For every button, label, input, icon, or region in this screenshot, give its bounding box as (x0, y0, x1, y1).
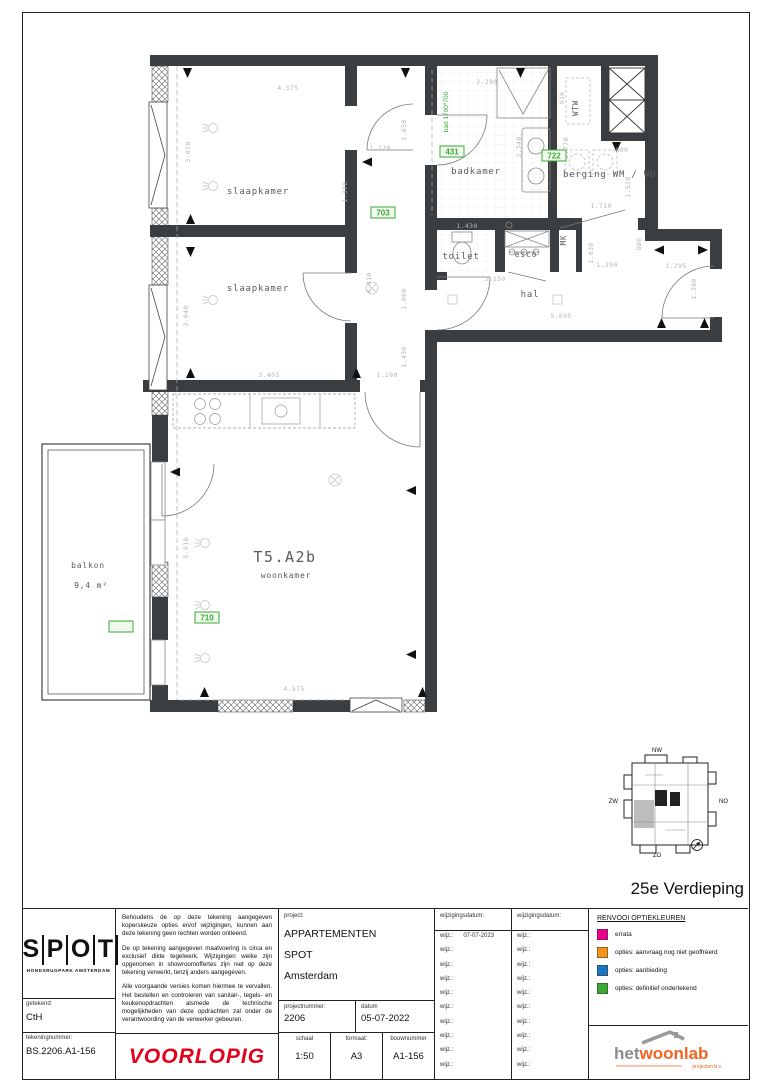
dim: 880 (635, 238, 643, 251)
room-label-wtw: WTW (571, 100, 580, 116)
kitchen (173, 394, 355, 428)
wijz-label: wijz.: (440, 1062, 453, 1068)
wijz-label: wijz.: (517, 990, 530, 996)
legend-label: opties: aanbieding (615, 967, 667, 974)
room-label-esco: esco (515, 250, 537, 259)
dim: 1.430 (456, 222, 477, 230)
wijz-label: wijz.: (517, 933, 530, 939)
legend-cell: RENVOOI OPTIEKLEUREN errata opties: aanv… (588, 909, 748, 1079)
room-label-slaapkamer-2: slaapkamer (227, 284, 289, 294)
datum-value: 05-07-2022 (361, 1013, 429, 1024)
brand-woonlab: woonlab (638, 1044, 708, 1063)
minimap-label-nw: NW (652, 748, 662, 754)
getekend-label: getekend: (26, 1001, 52, 1007)
tekeningnummer-label: tekeningnummer: (26, 1035, 72, 1041)
wijz-label: wijz.: (440, 1047, 453, 1053)
legend-swatch (597, 983, 608, 994)
room-label-berging: berging WM / WD (563, 170, 656, 180)
disclaimer-cell: Behoudens de op deze tekening aangegeven… (115, 909, 278, 1079)
wijz-label: wijz.: (440, 933, 453, 939)
dim: 910 (558, 92, 566, 105)
schaal-value: 1:50 (283, 1051, 326, 1062)
schaal-label: schaal (296, 1036, 313, 1042)
bad-size-note: bad 1700*700 (443, 91, 450, 132)
wijz-label: wijz.: (517, 947, 530, 953)
option-corridor: 703 (376, 209, 390, 218)
dim: 1.370 (341, 181, 349, 202)
room-label-woonkamer: woonkamer (261, 571, 312, 580)
legend-swatch (597, 965, 608, 976)
dim: 1.380 (690, 278, 698, 299)
dim: 2.290 (476, 78, 497, 86)
dim: 1.658 (400, 119, 408, 140)
wijz-label: wijz.: (517, 1047, 530, 1053)
wijz-date: 07-07-2023 (463, 933, 494, 939)
option-berging: 722 (547, 152, 561, 161)
dim: 3.040 (182, 305, 190, 326)
wijz-label: wijz.: (440, 1033, 453, 1039)
floor-title: 25e Verdieping (524, 879, 744, 899)
dim: 1.060 (400, 288, 408, 309)
wijz-label: wijz.: (440, 1004, 453, 1010)
room-label-hal: hal (521, 290, 540, 300)
brand-subtitle: projecten b.v. (692, 1064, 722, 1070)
dim: 5.695 (550, 312, 571, 320)
dim: 1.030 (587, 242, 595, 263)
logo-subtitle: HONDSRUGPARK AMSTERDAM (27, 968, 111, 973)
wijzigingsdatum-header: wijzigingsdatum: (512, 909, 588, 931)
option-woonkamer: 710 (200, 614, 214, 623)
legend-item-aanvraag: opties: aanvraag nog niet geoffreerd (597, 947, 740, 958)
dim: 1.528 (624, 176, 632, 197)
project-city: Amsterdam (284, 970, 429, 982)
walls (143, 55, 722, 712)
logo-letter: T (95, 937, 116, 962)
dim: 4.410 (365, 272, 373, 293)
legend-label: errata (615, 931, 632, 938)
wijzigingsdatum-header: wijzigingsdatum: (435, 909, 511, 931)
wijz-label: wijz.: (440, 1019, 453, 1025)
dim: 1.100 (376, 371, 397, 379)
projectnummer-value: 2206 (284, 1013, 350, 1024)
wijz-label: wijz.: (517, 976, 530, 982)
dim: 3.405 (258, 371, 279, 379)
svg-text:hetwoonlab: hetwoonlab (614, 1044, 708, 1063)
tekeningnummer-value: BS.2206.A1-156 (26, 1046, 111, 1057)
dim: 1.430 (400, 346, 408, 367)
formaat-value: A3 (335, 1051, 378, 1062)
legend-swatch (597, 929, 608, 940)
logo-letter: P (44, 937, 67, 962)
wijz-label: wijz.: (517, 1004, 530, 1010)
legend-item-aanbieding: opties: aanbieding (597, 965, 740, 976)
project-cell: project: APPARTEMENTEN SPOT Amsterdam pr… (278, 909, 434, 1079)
legend-label: opties: aanvraag nog niet geoffreerd (615, 949, 718, 956)
wijz-label: wijz.: (440, 947, 453, 953)
dim: 800 (616, 146, 629, 154)
datum-label: datum (361, 1004, 378, 1010)
dim: 1.295 (665, 262, 686, 270)
highlighted-unit (634, 800, 654, 828)
dim: 1.250 (596, 261, 617, 269)
project-label: project: (284, 913, 429, 919)
disclaimer-paragraph: De op tekening aangegeven maatvoering is… (122, 945, 272, 978)
revision-column-2: wijzigingsdatum: wijz.: wijz.: wijz.: wi… (511, 909, 588, 1079)
legend-item-errata: errata (597, 929, 740, 940)
balcony (42, 444, 150, 700)
minimap-label-zo: ZO (653, 853, 662, 859)
spot-logo: SPOT (19, 935, 117, 965)
dim: 1.710 (590, 202, 611, 210)
getekend-value: CtH (26, 1012, 111, 1023)
dim: 3.028 (184, 141, 192, 162)
minimap-label-no: NO (719, 799, 728, 805)
overview-minimap: NW ZW NO ZO (609, 748, 729, 859)
logo-cell: SPOT HONDSRUGPARK AMSTERDAM getekend: Ct… (22, 909, 115, 1079)
dim: 2.748 (515, 136, 523, 157)
unit-label: T5.A2b (253, 548, 316, 566)
shaft (609, 68, 645, 133)
hetwoonlab-logo: hetwoonlab projecten b.v. (589, 1026, 748, 1078)
room-label-slaapkamer-1: slaapkamer (227, 187, 289, 197)
disclaimer-paragraph: Behoudens de op deze tekening aangegeven… (122, 914, 272, 939)
wijz-label: wijz.: (517, 1062, 530, 1068)
bouwnummer-label: bouwnummer (390, 1036, 426, 1042)
room-label-balkon: balkon (71, 561, 105, 570)
dim: 4.575 (277, 84, 298, 92)
wijz-label: wijz.: (440, 976, 453, 982)
legend-label: opties: definitief ondertekend (615, 985, 697, 992)
room-label-mk: MK (559, 235, 568, 246)
project-name: APPARTEMENTEN (284, 928, 429, 940)
revision-column-1: wijzigingsdatum: wijz.:07-07-2023 wijz.:… (434, 909, 511, 1079)
minimap-label-zw: ZW (609, 799, 619, 805)
legend-swatch (597, 947, 608, 958)
dim: 3.150 (484, 275, 505, 283)
legend-item-ondertekend: opties: definitief ondertekend (597, 983, 740, 994)
wijz-label: wijz.: (440, 962, 453, 968)
wijz-label: wijz.: (517, 1033, 530, 1039)
option-badkamer: 431 (445, 148, 459, 157)
dim: 5.918 (182, 537, 190, 558)
bouwnummer-value: A1-156 (387, 1051, 430, 1062)
legend-title: RENVOOI OPTIEKLEUREN (597, 915, 740, 922)
title-block: SPOT HONDSRUGPARK AMSTERDAM getekend: Ct… (22, 908, 748, 1079)
balkon-area-value: 9,4 m² (74, 581, 108, 590)
project-name-2: SPOT (284, 949, 429, 961)
formaat-label: formaat: (345, 1036, 367, 1042)
logo-letter: O (68, 937, 93, 962)
disclaimer-paragraph: Alle voorgaande versies komen hiermee te… (122, 983, 272, 1024)
brand-het: het (614, 1044, 640, 1063)
dim: 4.575 (283, 685, 304, 693)
drawing-sheet: { "floor_label": "25e Verdieping", "plan… (0, 0, 772, 1092)
wijz-label: wijz.: (517, 962, 530, 968)
logo-letter: S (19, 937, 42, 962)
voorlopig-stamp: VOORLOPIG (116, 1034, 278, 1079)
dim: 1.170 (369, 144, 390, 152)
wijz-label: wijz.: (517, 1019, 530, 1025)
projectnummer-label: projectnummer: (284, 1004, 326, 1010)
room-label-toilet: toilet (442, 252, 479, 262)
wijz-label: wijz.: (440, 990, 453, 996)
room-label-badkamer: badkamer (451, 167, 501, 177)
